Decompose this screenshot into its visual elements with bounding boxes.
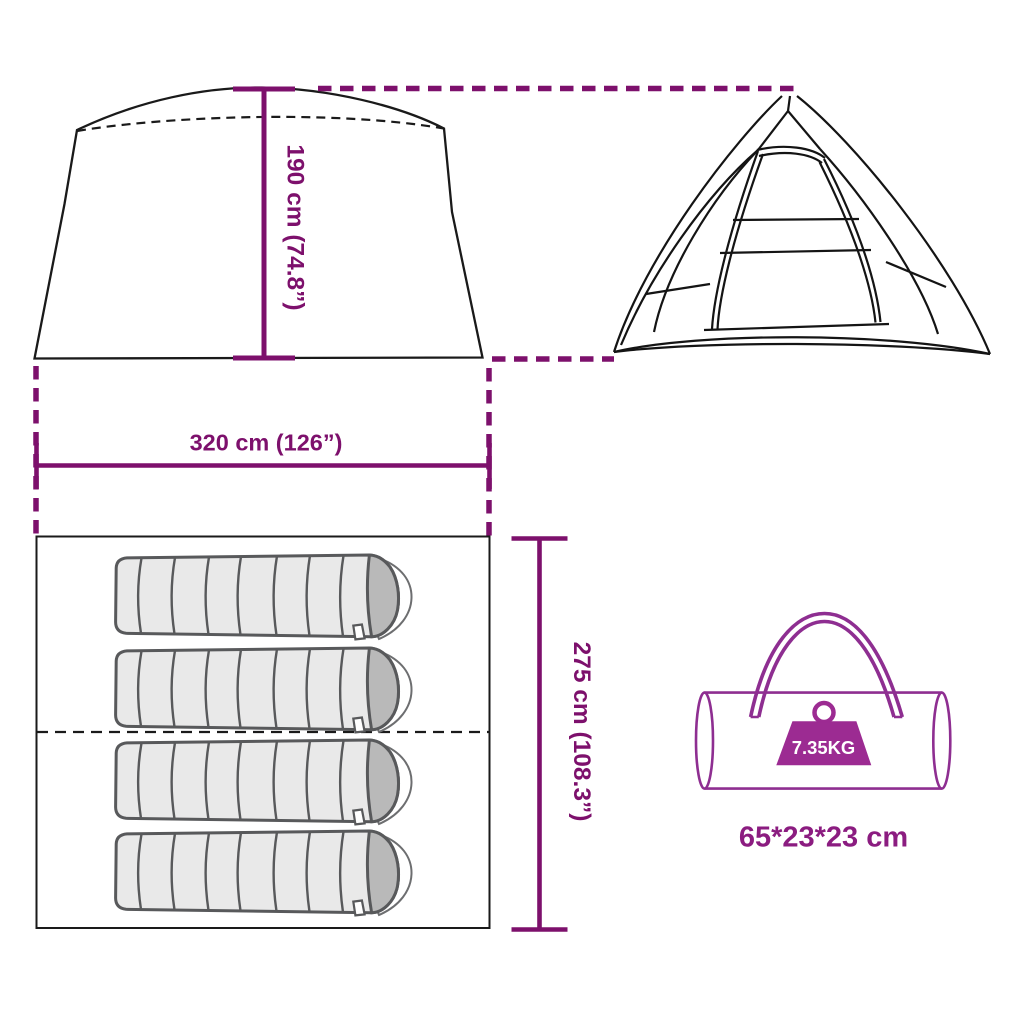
svg-text:7.35KG: 7.35KG — [792, 737, 855, 758]
svg-text:65*23*23 cm: 65*23*23 cm — [739, 822, 908, 854]
svg-text:275 cm (108.3”): 275 cm (108.3”) — [568, 642, 595, 822]
svg-text:190 cm (74.8”): 190 cm (74.8”) — [282, 144, 309, 310]
svg-text:320 cm (126”): 320 cm (126”) — [190, 430, 343, 456]
